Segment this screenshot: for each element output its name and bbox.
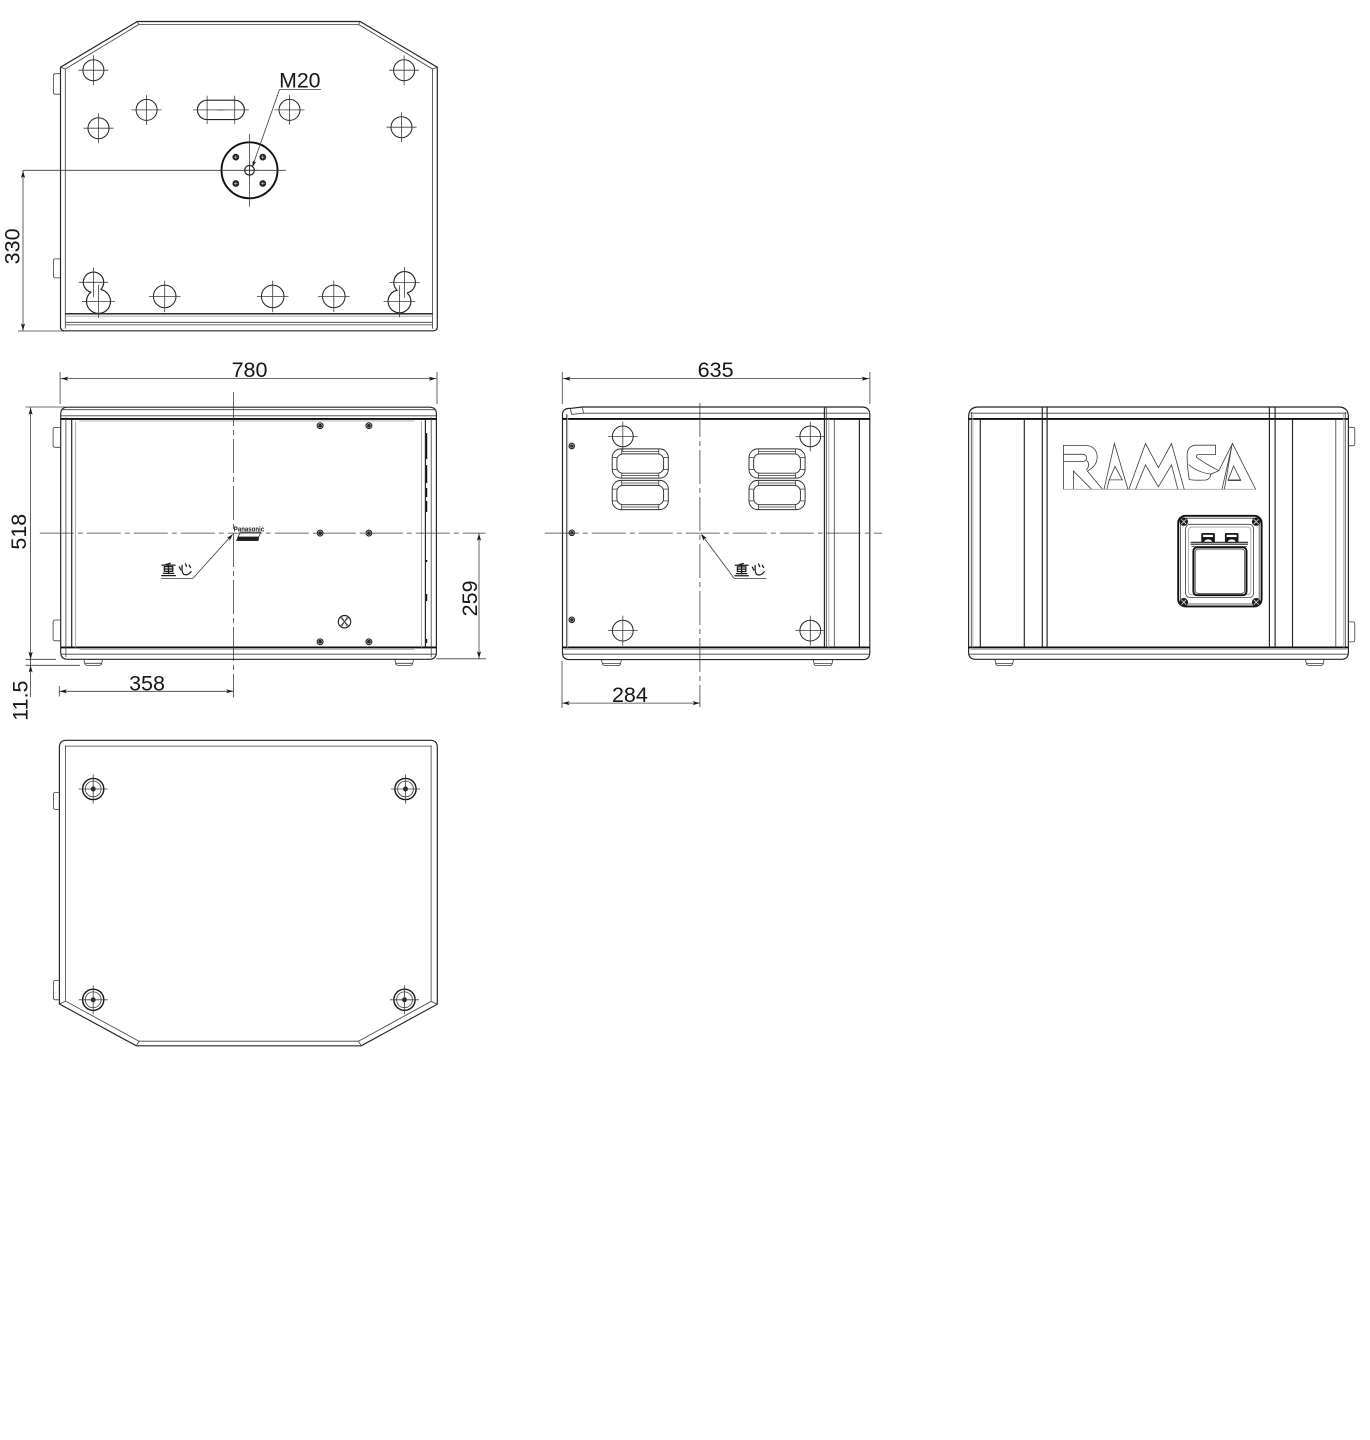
svg-text:284: 284 bbox=[612, 683, 648, 707]
svg-text:259: 259 bbox=[458, 580, 482, 616]
svg-text:330: 330 bbox=[0, 228, 24, 264]
svg-text:635: 635 bbox=[698, 358, 734, 382]
svg-text:518: 518 bbox=[7, 514, 31, 550]
svg-text:780: 780 bbox=[232, 358, 268, 382]
svg-text:11.5: 11.5 bbox=[9, 680, 33, 720]
svg-text:358: 358 bbox=[129, 671, 165, 695]
